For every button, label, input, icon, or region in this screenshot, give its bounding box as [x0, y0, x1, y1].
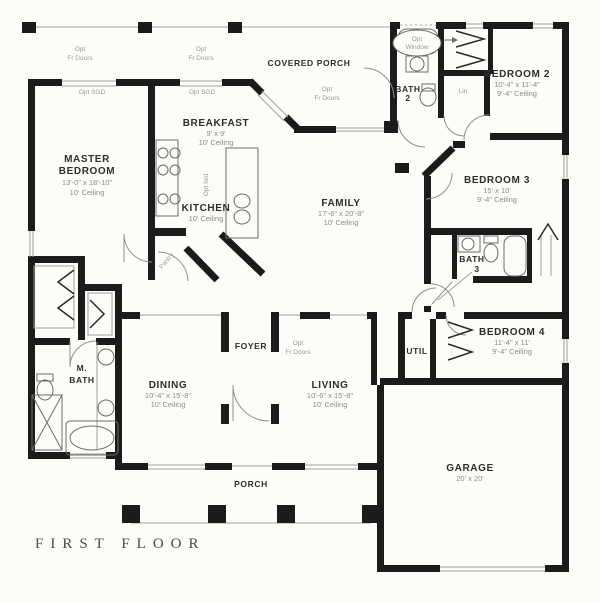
bifold-door	[448, 344, 472, 360]
bath3-label: 3	[474, 264, 479, 274]
opt-fr-doors-label: Opt	[322, 86, 333, 93]
bedroom4-dims: 11'-4" x 11'	[494, 338, 530, 347]
toilet-tank-icon	[484, 236, 498, 243]
front-door-arc	[233, 385, 269, 421]
wall-segment	[294, 126, 336, 133]
hall-wall-stub	[395, 163, 409, 173]
toilet-icon	[484, 244, 498, 262]
wall-segment	[490, 133, 569, 140]
porch-label: PORCH	[234, 479, 268, 489]
bath3-wall	[452, 235, 457, 279]
garage-bottom-wall	[545, 565, 569, 572]
bedroom2-closet-wall	[488, 27, 493, 74]
util-left-wall	[398, 312, 405, 385]
bay-window-lines	[262, 91, 288, 117]
garage-top-wall	[380, 378, 568, 385]
kitchen-diagonal-wall	[221, 234, 263, 274]
util-bedroom4-divider	[430, 319, 436, 378]
covered-porch-label: COVERED PORCH	[268, 58, 351, 68]
bay-wall-corner	[250, 81, 262, 93]
sink-icon	[462, 238, 474, 250]
bedroom3-chamfer-wall	[424, 148, 453, 176]
master-bedroom-dims: 13'-0" x 18'-10"	[62, 178, 113, 187]
door-arc	[444, 116, 464, 136]
master-bedroom-ceiling: 10' Ceiling	[70, 188, 105, 197]
opt-island-label: Opt Isld	[203, 173, 210, 196]
bath3-wall	[473, 276, 532, 283]
callout-arrowhead	[452, 37, 458, 43]
opt-window-label: Opt	[412, 36, 423, 43]
breakfast-label: BREAKFAST	[183, 118, 250, 129]
kitchen-label: KITCHEN	[182, 203, 231, 214]
sink-icon	[98, 349, 114, 365]
vanity-icon	[406, 56, 428, 72]
sink-icon	[98, 400, 114, 416]
bifold-door	[456, 52, 484, 68]
sink-bowl-icon	[234, 210, 250, 224]
breakfast-dims: 9' x 9'	[206, 129, 226, 138]
bay-window-lines	[258, 95, 284, 121]
porch-column	[228, 22, 242, 33]
wall-segment	[300, 312, 330, 319]
wall-segment	[116, 79, 180, 86]
wall-segment	[222, 79, 252, 86]
bifold-door	[448, 322, 472, 338]
opt-window-callout-oval	[393, 30, 441, 56]
bedroom3-label: BEDROOM 3	[464, 175, 530, 186]
family-dims: 17'-6" x 20'-8"	[318, 209, 364, 218]
family-label: FAMILY	[321, 198, 360, 209]
kitchen-wall	[148, 228, 186, 236]
util-label: UTIL	[406, 346, 427, 356]
bedroom4-label: BEDROOM 4	[479, 327, 545, 338]
mbath-bottom-wall	[28, 452, 70, 459]
floor-plan-drawing: COVERED PORCH Opt Fr Doors Opt Fr Doors …	[0, 0, 600, 602]
porch-column	[277, 505, 295, 523]
wall-corner	[384, 121, 398, 133]
bedroom4-ceiling: 9'-4" Ceiling	[492, 347, 532, 356]
right-outer-wall	[562, 363, 569, 572]
master-bedroom-label: BEDROOM	[59, 166, 115, 177]
pantry-wall	[148, 236, 155, 280]
bifold-door	[58, 296, 74, 320]
garage-left-wall	[377, 385, 384, 572]
door-arc	[464, 115, 489, 140]
sink-bowl-icon	[234, 194, 250, 208]
front-wall	[272, 463, 305, 470]
living-dims: 10'-6" x 15'-8"	[307, 391, 353, 400]
living-ceiling: 10' Ceiling	[313, 400, 348, 409]
wall-segment	[464, 312, 568, 319]
opt-fr-doors-label: Fr Doors	[67, 55, 93, 62]
opt-fr-doors-label: Fr Doors	[188, 55, 214, 62]
cooktop-burner-icon	[158, 165, 168, 175]
fixtures-layer	[32, 29, 558, 455]
bath2-label: 2	[405, 93, 410, 103]
bath3-top-wall	[424, 228, 532, 235]
foyer-pillar	[221, 312, 229, 352]
bifold-door	[456, 31, 484, 47]
bedroom2-dims: 10'-4" x 11'-4"	[494, 80, 540, 89]
opt-fr-doors-label: Fr Doors	[314, 95, 340, 102]
kitchen-wall	[148, 86, 155, 228]
master-bath-label: BATH	[69, 375, 94, 385]
opt-fr-doors-label: Opt	[293, 340, 304, 347]
foyer-pillar	[271, 404, 279, 424]
garage-bottom-wall	[383, 565, 440, 572]
floor-plan-sheet: COVERED PORCH Opt Fr Doors Opt Fr Doors …	[0, 0, 600, 602]
dining-label: DINING	[149, 380, 188, 391]
mbath-top-wall	[28, 338, 70, 345]
wall-corner	[367, 312, 377, 319]
foyer-label: FOYER	[235, 341, 267, 351]
sheet-title: FIRST FLOOR	[35, 536, 206, 552]
bathtub-icon	[504, 236, 526, 276]
door-arc	[431, 284, 454, 307]
bedroom2-ceiling: 9'-4" Ceiling	[497, 89, 537, 98]
left-outer-wall	[28, 79, 35, 231]
kitchen-counter	[156, 140, 178, 216]
bath3-wall	[527, 235, 532, 276]
family-right-wall	[424, 235, 431, 284]
pantry-label: Pantry	[158, 251, 176, 270]
toilet-icon	[37, 380, 53, 400]
master-bedroom-label: MASTER	[64, 154, 110, 165]
front-wall	[358, 463, 377, 470]
foyer-pillar	[221, 404, 229, 424]
bath3-label: BATH	[459, 254, 484, 264]
porch-column	[208, 505, 226, 523]
kitchen-ceiling: 10' Ceiling	[189, 214, 224, 223]
front-wall	[115, 463, 148, 470]
opt-window-label: Window	[405, 44, 428, 51]
master-bath-label: M.	[77, 363, 88, 373]
sink-bowl-icon	[158, 194, 168, 204]
closet-outline	[88, 293, 112, 335]
bedroom3-left-wall	[424, 176, 431, 228]
opt-fr-doors-label: Opt	[196, 46, 207, 53]
closet-wall	[78, 256, 85, 340]
foyer-pillar	[271, 312, 279, 352]
living-right-wall	[371, 312, 377, 385]
wall-segment	[453, 141, 465, 148]
linen-closet-label: Lin	[459, 88, 468, 95]
bedroom3-ceiling: 9'-4" Ceiling	[477, 195, 517, 204]
porch-column	[122, 505, 140, 523]
opt-sgd-label: Opt SGD	[79, 89, 106, 96]
front-wall	[205, 463, 232, 470]
pantry-diagonal-wall	[186, 248, 217, 280]
bedroom2-label: BEDROOM 2	[484, 69, 550, 80]
breakfast-ceiling: 10' Ceiling	[199, 138, 234, 147]
living-label: LIVING	[312, 380, 349, 391]
opt-fr-doors-label: Opt	[75, 46, 86, 53]
master-door-arc	[124, 234, 152, 262]
dining-ceiling: 10' Ceiling	[151, 400, 186, 409]
dining-dims: 10'-4" x 15'-8"	[145, 391, 191, 400]
door-arc	[398, 120, 425, 147]
wall-segment	[436, 312, 446, 319]
linen-closet-wall	[440, 70, 490, 76]
family-right-wall	[424, 306, 431, 312]
cooktop-burner-icon	[158, 148, 168, 158]
porch-column	[138, 22, 152, 33]
bifold-door	[58, 270, 74, 294]
bifold-door	[90, 300, 104, 328]
garden-tub-icon	[70, 426, 114, 450]
garage-dims: 20' x 20'	[456, 474, 484, 483]
porch-column	[22, 22, 36, 33]
opt-fr-doors-label: Fr Doors	[285, 349, 311, 356]
family-ceiling: 10' Ceiling	[324, 218, 359, 227]
walls-layer	[28, 22, 569, 572]
garage-label: GARAGE	[446, 463, 494, 474]
closet-wall	[28, 256, 80, 263]
opt-sgd-label: Opt SGD	[189, 89, 216, 96]
door-arc	[364, 68, 394, 98]
mbath-top-wall	[96, 338, 115, 345]
sink-icon	[410, 57, 424, 71]
bedroom3-dims: 15' x 10'	[483, 186, 511, 195]
